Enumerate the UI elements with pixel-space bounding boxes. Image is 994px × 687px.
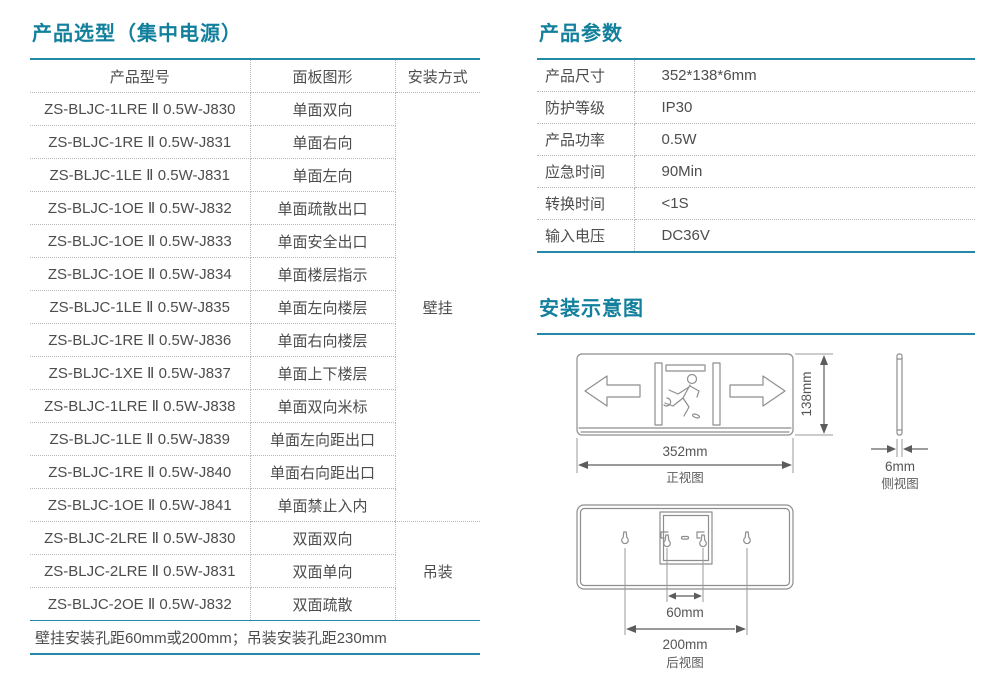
inner-hole-dimension: 60mm [666, 593, 704, 621]
param-row: 产品尺寸352*138*6mm [537, 60, 975, 92]
side-view-label: 侧视图 [881, 476, 919, 491]
param-label: 产品功率 [537, 124, 634, 156]
rear-view-drawing: 60mm 200mm 后视图 [577, 505, 793, 670]
running-man-icon [655, 363, 720, 425]
height-dim-label: 138mm [799, 371, 814, 416]
panel-graphic-cell: 单面右向楼层 [250, 324, 395, 357]
model-cell: ZS-BLJC-1LRE Ⅱ 0.5W-J830 [30, 93, 250, 126]
param-label: 输入电压 [537, 220, 634, 253]
width-dim-label: 352mm [662, 444, 707, 459]
model-cell: ZS-BLJC-1LE Ⅱ 0.5W-J835 [30, 291, 250, 324]
params-table-body: 产品尺寸352*138*6mm防护等级IP30产品功率0.5W应急时间90Min… [537, 60, 975, 252]
table-row: ZS-BLJC-2LRE Ⅱ 0.5W-J830双面双向吊装 [30, 522, 480, 555]
model-cell: ZS-BLJC-1OE Ⅱ 0.5W-J834 [30, 258, 250, 291]
thickness-dimension: 6mm [871, 439, 928, 474]
panel-graphic-cell: 单面左向楼层 [250, 291, 395, 324]
section-title-params: 产品参数 [537, 22, 975, 60]
height-dimension: 138mm [795, 354, 833, 435]
param-row: 转换时间<1S [537, 188, 975, 220]
rear-panel-inner [581, 509, 790, 586]
product-selection-table: 产品型号 面板图形 安装方式 ZS-BLJC-1LRE Ⅱ 0.5W-J830单… [30, 60, 480, 655]
panel-graphic-cell: 单面左向 [250, 159, 395, 192]
panel-graphic-cell: 单面左向距出口 [250, 423, 395, 456]
rear-view-label: 后视图 [666, 655, 704, 670]
param-value: 352*138*6mm [634, 60, 975, 92]
panel-graphic-cell: 单面右向距出口 [250, 456, 395, 489]
model-cell: ZS-BLJC-1OE Ⅱ 0.5W-J832 [30, 192, 250, 225]
panel-graphic-cell: 单面上下楼层 [250, 357, 395, 390]
model-cell: ZS-BLJC-1RE Ⅱ 0.5W-J836 [30, 324, 250, 357]
param-value: 90Min [634, 156, 975, 188]
width-dimension: 352mm [577, 438, 793, 473]
thickness-dim-label: 6mm [885, 459, 915, 474]
panel-graphic-cell: 单面禁止入内 [250, 489, 395, 522]
outer-hole-dim-label: 200mm [662, 637, 707, 652]
product-spec-page: 产品选型（集中电源） 产品型号 面板图形 安装方式 ZS-BLJC-1LRE Ⅱ… [0, 0, 994, 687]
table-row: ZS-BLJC-1LRE Ⅱ 0.5W-J830单面双向壁挂 [30, 93, 480, 126]
product-selection-section: 产品选型（集中电源） 产品型号 面板图形 安装方式 ZS-BLJC-1LRE Ⅱ… [30, 22, 480, 655]
right-column: 产品参数 产品尺寸352*138*6mm防护等级IP30产品功率0.5W应急时间… [537, 22, 975, 684]
center-slot [682, 537, 689, 540]
product-table-body: ZS-BLJC-1LRE Ⅱ 0.5W-J830单面双向壁挂ZS-BLJC-1R… [30, 93, 480, 621]
rear-panel-outer [577, 505, 793, 589]
keyhole-inner-left-icon [664, 535, 671, 547]
model-cell: ZS-BLJC-2OE Ⅱ 0.5W-J832 [30, 588, 250, 621]
panel-graphic-cell: 单面双向 [250, 93, 395, 126]
model-cell: ZS-BLJC-1OE Ⅱ 0.5W-J833 [30, 225, 250, 258]
params-table: 产品尺寸352*138*6mm防护等级IP30产品功率0.5W应急时间90Min… [537, 60, 975, 253]
panel-graphic-cell: 双面疏散 [250, 588, 395, 621]
side-profile-outline [897, 354, 902, 435]
param-row: 应急时间90Min [537, 156, 975, 188]
inner-hole-dim-label: 60mm [666, 605, 704, 620]
col-header-panel-graphic: 面板图形 [250, 60, 395, 93]
panel-graphic-cell: 双面双向 [250, 522, 395, 555]
col-header-mount-type: 安装方式 [395, 60, 480, 93]
param-label: 产品尺寸 [537, 60, 634, 92]
panel-graphic-cell: 双面单向 [250, 555, 395, 588]
section-title-installation: 安装示意图 [537, 297, 975, 335]
table-footer-note: 壁挂安装孔距60mm或200mm；吊装安装孔距230mm [30, 621, 480, 655]
panel-graphic-cell: 单面安全出口 [250, 225, 395, 258]
keyhole-left-icon [622, 532, 629, 544]
front-view-drawing: 138mm 352mm 正视图 [577, 354, 833, 485]
model-cell: ZS-BLJC-2LRE Ⅱ 0.5W-J830 [30, 522, 250, 555]
param-label: 转换时间 [537, 188, 634, 220]
model-cell: ZS-BLJC-1RE Ⅱ 0.5W-J831 [30, 126, 250, 159]
model-cell: ZS-BLJC-1LE Ⅱ 0.5W-J831 [30, 159, 250, 192]
model-cell: ZS-BLJC-1LE Ⅱ 0.5W-J839 [30, 423, 250, 456]
param-label: 防护等级 [537, 92, 634, 124]
param-value: IP30 [634, 92, 975, 124]
section-title-selection: 产品选型（集中电源） [30, 22, 480, 60]
table-footer-row: 壁挂安装孔距60mm或200mm；吊装安装孔距230mm [30, 621, 480, 655]
left-arrow-icon [585, 376, 640, 406]
side-view-drawing: 6mm 侧视图 [871, 354, 928, 491]
installation-diagram: 138mm 352mm 正视图 [537, 339, 975, 684]
model-cell: ZS-BLJC-1XE Ⅱ 0.5W-J837 [30, 357, 250, 390]
param-row: 输入电压DC36V [537, 220, 975, 253]
right-arrow-icon [730, 376, 785, 406]
model-cell: ZS-BLJC-2LRE Ⅱ 0.5W-J831 [30, 555, 250, 588]
panel-graphic-cell: 单面双向米标 [250, 390, 395, 423]
param-row: 防护等级IP30 [537, 92, 975, 124]
param-value: <1S [634, 188, 975, 220]
keyhole-right-icon [744, 532, 751, 544]
col-header-model: 产品型号 [30, 60, 250, 93]
model-cell: ZS-BLJC-1RE Ⅱ 0.5W-J840 [30, 456, 250, 489]
param-label: 应急时间 [537, 156, 634, 188]
outer-hole-dimension: 200mm [626, 625, 746, 652]
panel-graphic-cell: 单面右向 [250, 126, 395, 159]
front-view-label: 正视图 [666, 470, 704, 485]
panel-graphic-cell: 单面疏散出口 [250, 192, 395, 225]
param-value: 0.5W [634, 124, 975, 156]
param-value: DC36V [634, 220, 975, 253]
table-header-row: 产品型号 面板图形 安装方式 [30, 60, 480, 93]
panel-graphic-cell: 单面楼层指示 [250, 258, 395, 291]
model-cell: ZS-BLJC-1LRE Ⅱ 0.5W-J838 [30, 390, 250, 423]
keyhole-inner-right-icon [700, 535, 707, 547]
param-row: 产品功率0.5W [537, 124, 975, 156]
mount-type-cell: 吊装 [395, 522, 480, 621]
mount-type-cell: 壁挂 [395, 93, 480, 522]
model-cell: ZS-BLJC-1OE Ⅱ 0.5W-J841 [30, 489, 250, 522]
